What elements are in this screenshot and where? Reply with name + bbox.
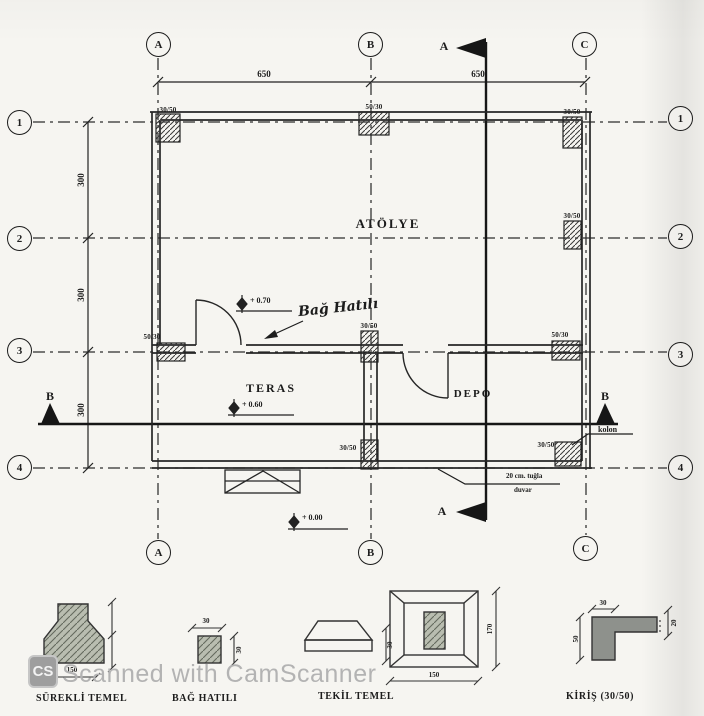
legend-tekil-dim-side: 30 <box>386 642 394 649</box>
columns <box>156 112 582 469</box>
grid-bubble-row-2-left: 2 <box>7 226 32 251</box>
legend-kiris-dim-left: 50 <box>572 636 580 643</box>
column-tag-c1: 30/50 <box>564 108 581 116</box>
legend-label-kiris: KİRİŞ (30/50) <box>566 691 634 702</box>
legend-label-surekli-temel: SÜREKLİ TEMEL <box>36 693 127 704</box>
column-tag-c4: 30/50 <box>538 441 555 449</box>
level-atolye: + 0.70 <box>250 296 271 305</box>
section-line-a <box>456 38 486 522</box>
legend-bag-dim-top: 30 <box>203 617 210 625</box>
camscanner-watermark-text: Scanned with CamScanner <box>62 660 376 689</box>
level-ground: + 0.00 <box>302 513 323 522</box>
grid-bubble-row-3-left: 3 <box>7 338 32 363</box>
dim-top-bc: 650 <box>471 69 485 79</box>
section-b-label-left: B <box>46 389 54 404</box>
grid-bubble-col-a-top: A <box>146 32 171 57</box>
column-tag-c2: 30/50 <box>564 212 581 220</box>
scanned-floor-plan-page: A B C A B C 1 2 3 4 1 2 3 4 650 650 300 … <box>0 0 704 716</box>
legend-label-tekil-temel: TEKİL TEMEL <box>318 691 394 702</box>
legend-bag-dim-right: 30 <box>235 647 243 654</box>
column-tag-b4: 30/50 <box>340 444 357 452</box>
grid-bubble-col-c-top: C <box>572 32 597 57</box>
column-tag-c3: 50/30 <box>552 331 569 339</box>
grid-bubble-col-b-top: B <box>358 32 383 57</box>
entry-steps <box>225 470 300 493</box>
room-label-teras: TERAS <box>246 381 296 396</box>
grid-bubble-row-3-right: 3 <box>668 342 693 367</box>
dim-left-23: 300 <box>76 288 86 302</box>
column-tag-a1: 30/50 <box>160 106 177 114</box>
dim-left-12: 300 <box>76 173 86 187</box>
camscanner-logo: CS <box>28 655 58 688</box>
note-tugla-line2: duvar <box>514 486 532 494</box>
grid-bubble-col-c-bottom: C <box>573 536 598 561</box>
grid-bubble-row-1-right: 1 <box>668 106 693 131</box>
section-a-label-bottom: A <box>438 504 447 519</box>
legend-label-bag-hatili: BAĞ HATILI <box>172 693 238 704</box>
section-a-label-top: A <box>440 39 449 54</box>
level-marker-symbols <box>228 295 348 531</box>
legend-tekil-dim-right: 170 <box>486 624 494 635</box>
legend-kiris-dim-right: 20 <box>670 620 678 627</box>
column-tag-b1: 50/30 <box>366 103 383 111</box>
note-kolon: kolon <box>598 425 617 434</box>
column-tag-b3: 30/50 <box>361 322 378 330</box>
section-line-b <box>38 403 618 424</box>
grid-bubble-row-4-right: 4 <box>668 455 693 480</box>
legend-kiris-dim-top: 30 <box>600 599 607 607</box>
note-tugla-line1: 20 cm. tuğla <box>506 472 542 480</box>
legend-tekil-dim-bottom: 150 <box>429 671 440 679</box>
room-label-depo: DEPO <box>454 388 493 400</box>
section-b-label-right: B <box>601 389 609 404</box>
plan-linework <box>0 0 704 716</box>
level-teras: + 0.60 <box>242 400 263 409</box>
grid-bubble-col-b-bottom: B <box>358 540 383 565</box>
grid-bubble-col-a-bottom: A <box>146 540 171 565</box>
grid-bubble-row-1-left: 1 <box>7 110 32 135</box>
grid-bubble-row-2-right: 2 <box>668 224 693 249</box>
room-label-atolye: ATÖLYE <box>356 216 421 232</box>
column-tag-a3: 50/30 <box>144 333 161 341</box>
dim-left-34: 300 <box>76 403 86 417</box>
grid-bubble-row-4-left: 4 <box>7 455 32 480</box>
dim-top-ab: 650 <box>257 69 271 79</box>
